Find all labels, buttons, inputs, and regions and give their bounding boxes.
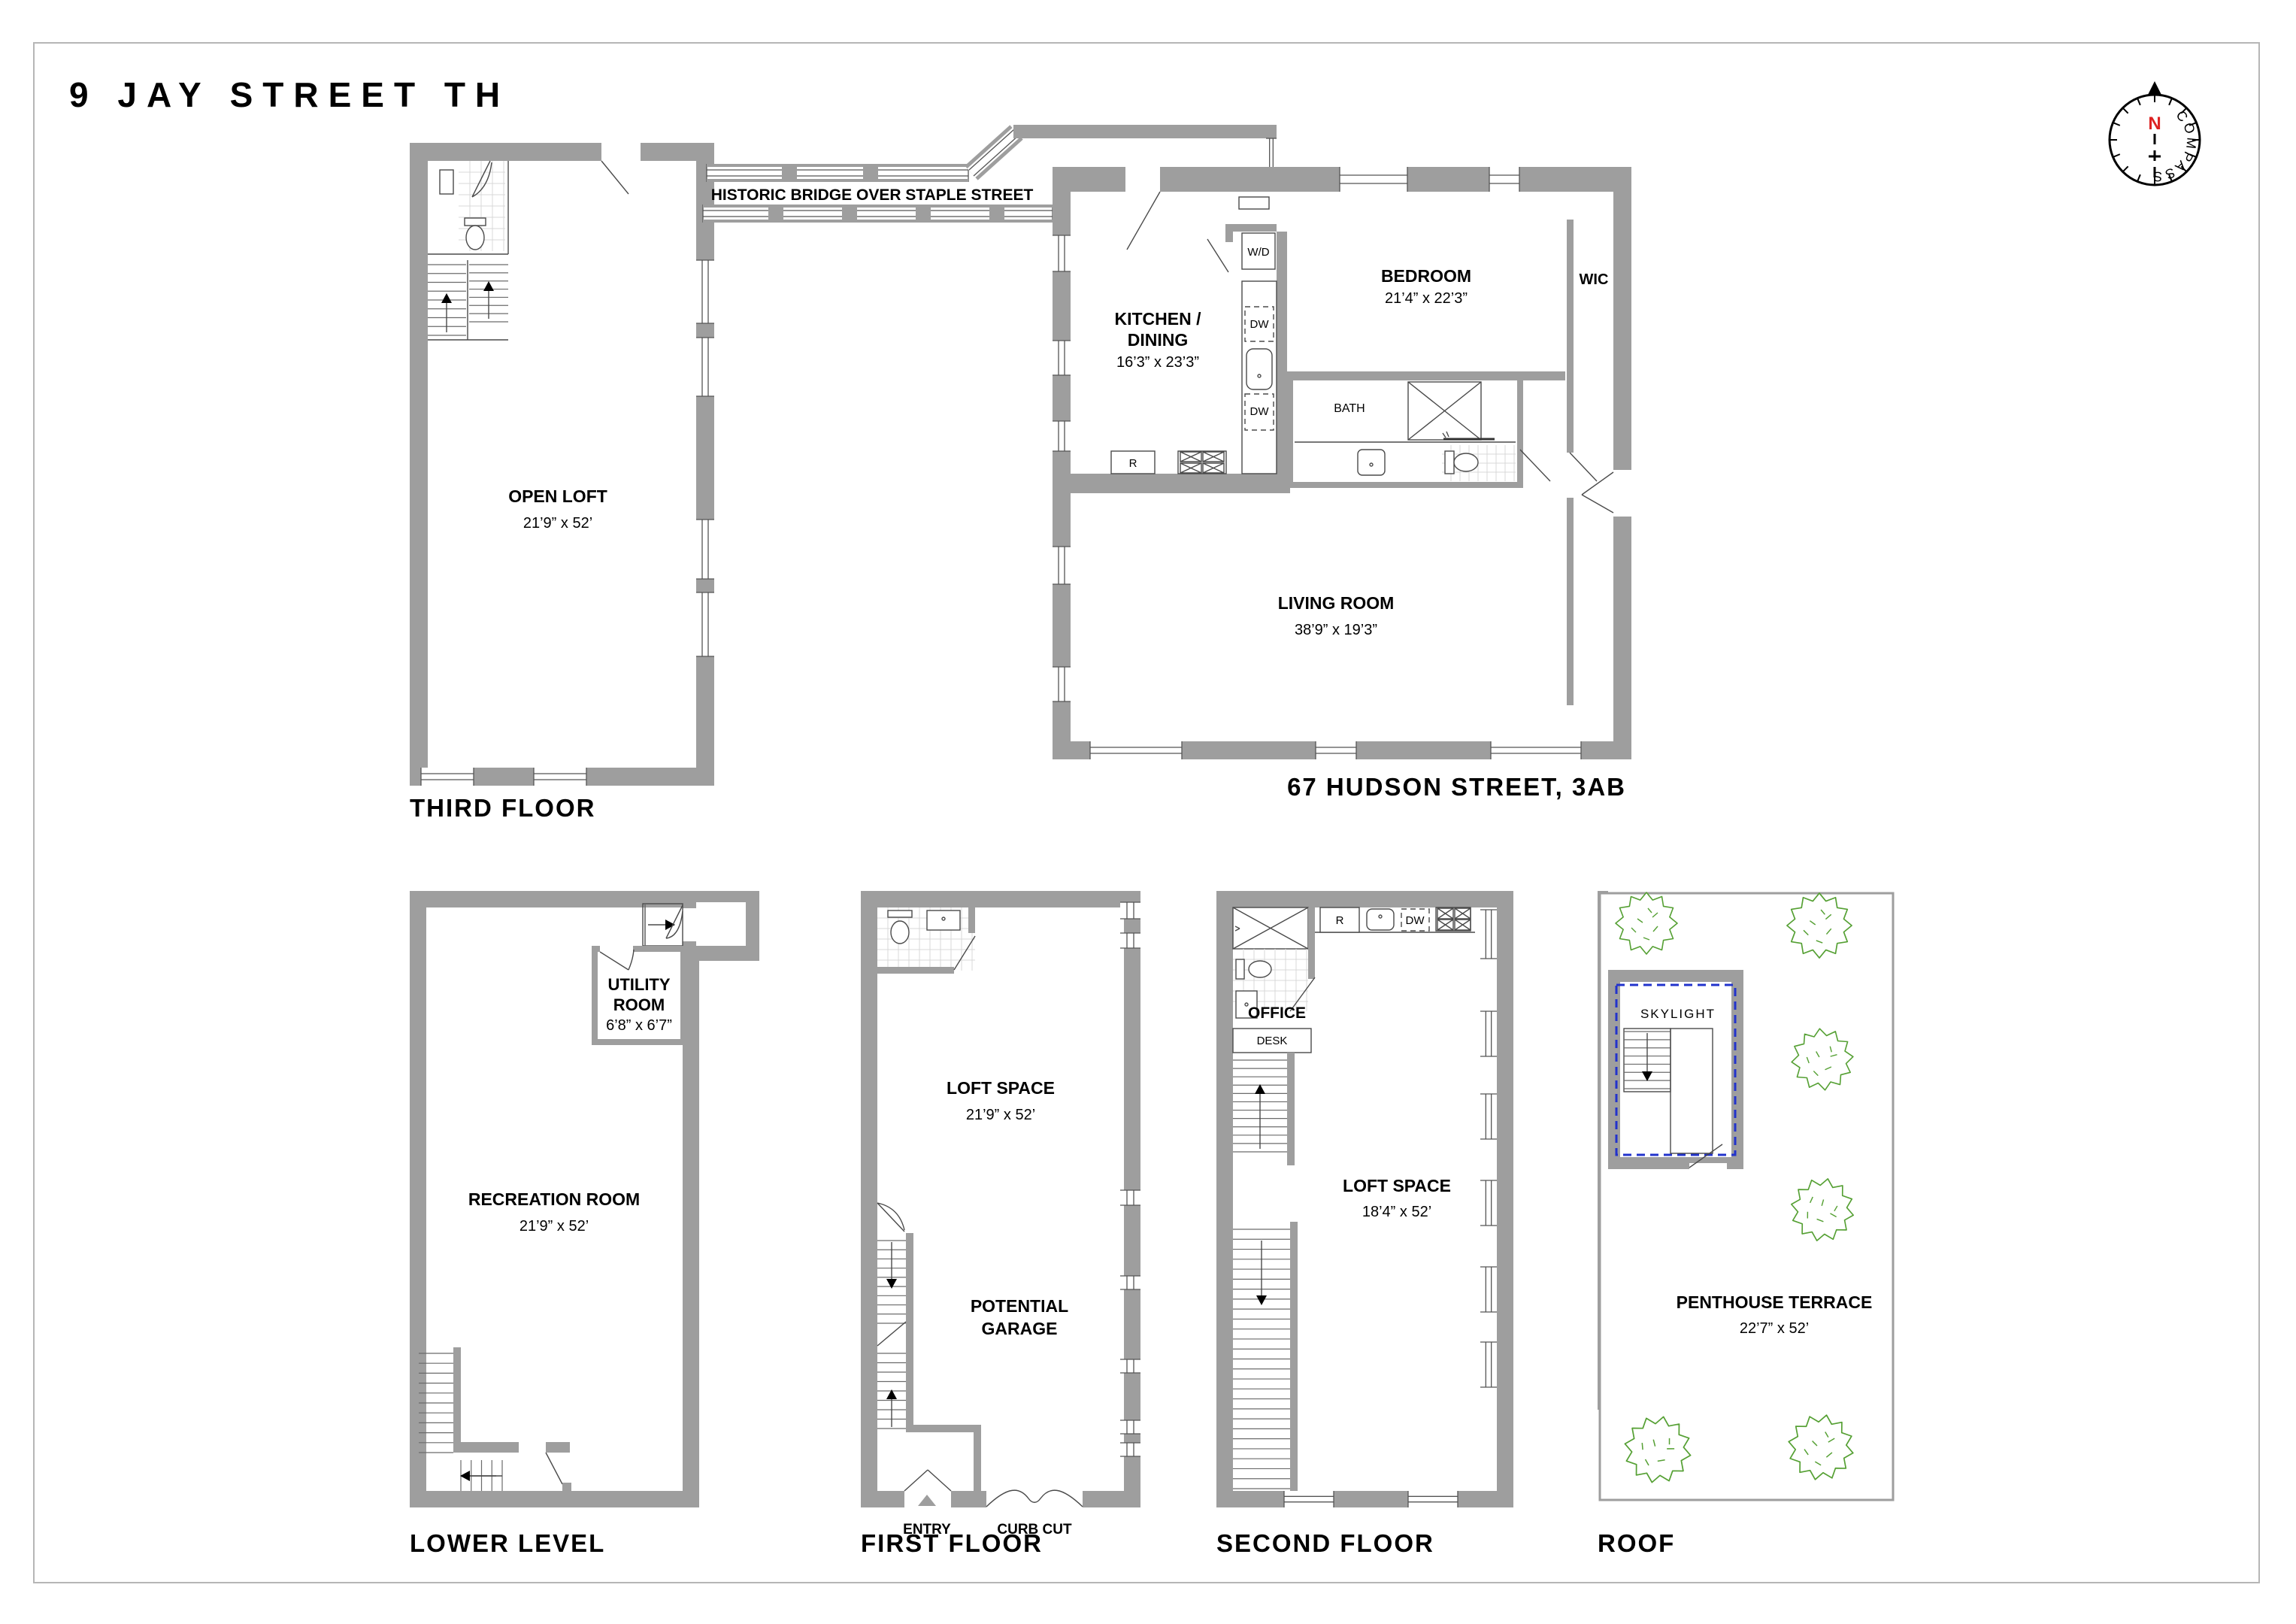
bathroom-wall (877, 967, 954, 974)
kitchen-wall (1277, 232, 1287, 493)
bridge-wall-edge (707, 179, 968, 182)
door-leaf (1207, 239, 1228, 272)
wic-wall (1567, 220, 1574, 453)
sink-icon (1367, 909, 1394, 930)
bathroom-fixture (440, 170, 453, 194)
bridge-mullion (842, 205, 857, 223)
window (1053, 667, 1071, 701)
door-opening (1613, 470, 1631, 517)
wd-label: W/D (1247, 246, 1269, 259)
room-label-garage: POTENTIAL (971, 1296, 1068, 1316)
window (1090, 741, 1182, 759)
roof-plan: SKYLIGHT PENTHOUSE TERRACE 22’7” x 52’ R… (1598, 891, 1893, 1557)
room-label-garage2: GARAGE (982, 1319, 1058, 1338)
window (1340, 167, 1407, 192)
bath-walls (1290, 377, 1520, 485)
room-label-wic: WIC (1580, 271, 1609, 288)
hall-wall (974, 1425, 981, 1491)
room-label-office: OFFICE (1248, 1004, 1306, 1022)
window (1120, 1443, 1140, 1456)
toilet-icon (466, 226, 484, 250)
window (1284, 1491, 1334, 1507)
first-interior (877, 907, 1124, 1491)
fridge-label: R (1336, 914, 1344, 927)
window (696, 260, 714, 323)
room-label-utility2: ROOM (613, 995, 665, 1014)
compass-north-label: N (2148, 114, 2161, 134)
dw-label: DW (1406, 914, 1425, 927)
door-leaf (1127, 192, 1160, 250)
bathroom-wall (1308, 907, 1315, 979)
toilet-tank (1236, 959, 1244, 979)
hudson-plan: W/D DW DW R B (1053, 167, 1631, 801)
wd-closet: W/D (1207, 224, 1277, 272)
dw-label: DW (1250, 318, 1270, 331)
floor-label-roof: ROOF (1598, 1529, 1675, 1557)
floor-label-lower: LOWER LEVEL (410, 1529, 605, 1557)
desk-label: DESK (1257, 1035, 1288, 1047)
vestibule-interior (696, 902, 746, 946)
bath-label: BATH (1334, 402, 1365, 415)
window (696, 592, 714, 656)
door-opening (600, 944, 633, 953)
living-partition-wall (1567, 498, 1574, 705)
room-dims-loft: 21’9” x 52’ (966, 1107, 1035, 1123)
window (1120, 1420, 1140, 1434)
room-dims-living: 38’9” x 19’3” (1295, 622, 1377, 638)
window (1408, 1491, 1458, 1507)
room-label-utility: UTILITY (607, 975, 670, 994)
stair-wall (906, 1233, 913, 1432)
third-floor-plan: OPEN LOFT 21’9” x 52’ THIRD FLOOR (410, 143, 714, 822)
window (1480, 1342, 1497, 1387)
bridge-mullion (916, 205, 931, 223)
toilet-tank (888, 910, 912, 917)
room-dims-utility: 6’8” x 6’7” (606, 1017, 672, 1034)
floor-label-first: FIRST FLOOR (861, 1529, 1043, 1557)
skylight-label: SKYLIGHT (1640, 1007, 1716, 1021)
toilet-tank (1445, 451, 1454, 474)
stair-wall (459, 1442, 570, 1453)
window (1489, 167, 1519, 192)
window (1316, 741, 1356, 759)
door-leaf (1582, 495, 1613, 513)
window (1491, 741, 1581, 759)
page-border (34, 43, 2259, 1583)
door-opening (601, 143, 641, 161)
compass-north-arrow-icon (2148, 81, 2161, 95)
wall-stub (562, 1483, 571, 1493)
bridge-angled-glass (971, 132, 1016, 173)
sink-icon (1246, 349, 1272, 389)
door-opening (519, 1442, 546, 1453)
window (696, 520, 714, 579)
toilet-icon (1249, 961, 1271, 977)
sink-icon (1358, 450, 1385, 475)
floor-label-third: THIRD FLOOR (410, 794, 595, 822)
window (1480, 1011, 1497, 1056)
bridge-upper-wall (1013, 125, 1277, 138)
closet-wall (1225, 224, 1277, 232)
floorplan-canvas: 9 JAY STREET TH N COMPASS (0, 0, 2296, 1624)
window (1120, 902, 1140, 919)
bridge-wall-edge (707, 164, 968, 167)
window (534, 768, 586, 786)
window (1480, 1180, 1497, 1226)
window (1480, 1267, 1497, 1312)
window (1053, 547, 1071, 584)
bridge-mullion (782, 164, 797, 182)
closet-wall (1225, 224, 1233, 242)
room-label-open-loft: OPEN LOFT (508, 486, 607, 506)
first-floor-plan: ENTRY CURB CUT LOFT SPACE 21’9” x 52’ PO… (861, 891, 1140, 1557)
bathroom-wall (968, 907, 975, 933)
second-interior (1233, 907, 1497, 1491)
bridge-mullion (989, 205, 1004, 223)
room-dims-open-loft: 21’9” x 52’ (523, 515, 592, 532)
floor-label-hudson: 67 HUDSON STREET, 3AB (1287, 773, 1626, 801)
curb-cut-opening (986, 1491, 1083, 1507)
door-opening (678, 908, 698, 941)
room-dims-recreation: 21’9” x 52’ (519, 1218, 589, 1235)
utility-room: UTILITY ROOM 6’8” x 6’7” (595, 944, 683, 1042)
stair-wall (1287, 1053, 1295, 1165)
bridge-mullion (768, 205, 783, 223)
toilet-icon (891, 921, 909, 944)
roof-skylight-block: SKYLIGHT (1608, 970, 1743, 1171)
window (1053, 341, 1071, 375)
lower-level-plan: UTILITY ROOM 6’8” x 6’7” RECREATION ROOM… (410, 891, 759, 1557)
window (1053, 421, 1071, 451)
window (1120, 1276, 1140, 1289)
hudson-right-wall (1613, 167, 1631, 759)
hudson-bath: BATH (1290, 377, 1550, 485)
room-label-loft2: LOFT SPACE (1343, 1176, 1451, 1195)
bridge-mullion (863, 164, 878, 182)
room-label-kitchen2: DINING (1128, 330, 1189, 350)
door-opening (1125, 167, 1160, 192)
stair-wall (1290, 1222, 1298, 1492)
third-floor-interior (428, 161, 696, 768)
toilet-icon (1454, 453, 1478, 471)
wall-niche (1239, 197, 1269, 209)
fridge-label: R (1129, 457, 1137, 470)
window (1120, 1190, 1140, 1205)
room-label-kitchen: KITCHEN / (1115, 309, 1202, 329)
room-label-loft: LOFT SPACE (947, 1078, 1055, 1098)
compass: N COMPASS (2110, 81, 2200, 185)
window (1120, 1359, 1140, 1373)
window (1053, 235, 1071, 271)
window (1480, 910, 1497, 959)
room-label-bedroom: BEDROOM (1381, 266, 1471, 286)
window (696, 338, 714, 396)
door-leaf (1520, 450, 1550, 481)
window (1120, 933, 1140, 948)
room-label-recreation: RECREATION ROOM (468, 1189, 640, 1209)
room-dims-terrace: 22’7” x 52’ (1740, 1320, 1809, 1337)
page-title: 9 JAY STREET TH (69, 75, 510, 114)
floor-label-second: SECOND FLOOR (1216, 1529, 1434, 1557)
room-label-terrace: PENTHOUSE TERRACE (1677, 1292, 1873, 1312)
hall-wall (906, 1425, 981, 1432)
door-leaf (1570, 453, 1597, 481)
room-dims-kitchen: 16’3” x 23’3” (1116, 354, 1199, 371)
dw-label: DW (1250, 405, 1270, 418)
second-floor-plan: R DW OFFICE DESK (1216, 891, 1513, 1557)
stair-wall (453, 1347, 461, 1453)
window (1480, 1094, 1497, 1139)
window (421, 768, 474, 786)
room-dims-bedroom: 21’4” x 22’3” (1385, 290, 1468, 307)
room-label-living: LIVING ROOM (1278, 593, 1395, 613)
room-dims-loft2: 18’4” x 52’ (1362, 1204, 1431, 1220)
toilet-tank (465, 218, 486, 226)
door-leaf (1582, 472, 1613, 495)
kitchen-bottom-wall (1071, 474, 1290, 493)
bridge-label: HISTORIC BRIDGE OVER STAPLE STREET (711, 186, 1034, 204)
